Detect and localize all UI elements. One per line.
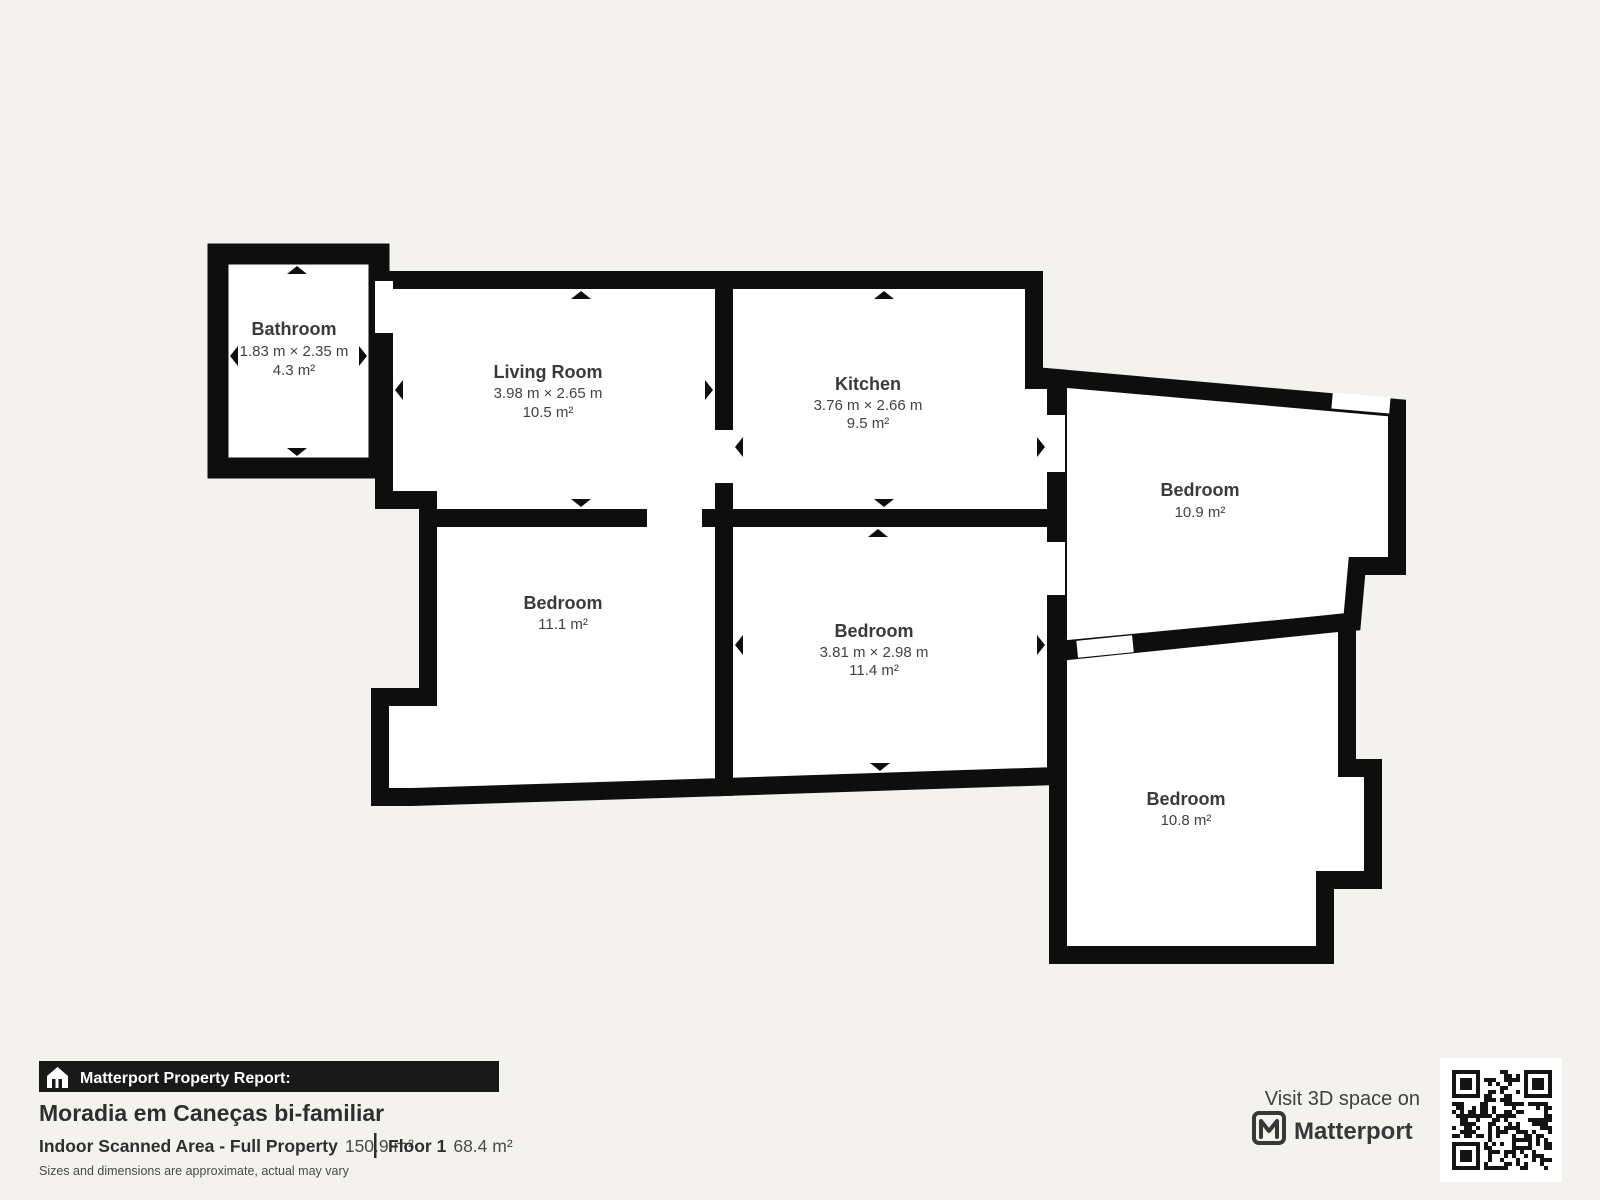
room-dims-living-room: 3.98 m × 2.65 m: [494, 385, 603, 402]
room-area-bedroom-bottom-right: 10.8 m²: [1161, 812, 1212, 829]
matterport-wordmark: Matterport: [1294, 1118, 1413, 1145]
door-opening-living-hall: [375, 281, 393, 333]
report-banner-label: Matterport Property Report:: [80, 1070, 291, 1087]
property-title: Moradia em Caneças bi-familiar: [39, 1100, 384, 1126]
room-label-living-room: Living Room: [494, 362, 603, 382]
room-dims-kitchen: 3.76 m × 2.66 m: [814, 397, 923, 414]
room-bedroom-bottom-left: [380, 518, 724, 797]
door-opening-living-bedroom: [647, 509, 702, 527]
room-label-bathroom: Bathroom: [252, 319, 337, 339]
door-opening-living-kitchen: [715, 430, 733, 483]
door-opening-kitchen-bedroom: [1047, 415, 1065, 472]
stats-divider: [374, 1133, 377, 1158]
floor-area-value: 68.4 m²: [453, 1136, 512, 1156]
disclaimer-text: Sizes and dimensions are approximate, ac…: [39, 1164, 350, 1178]
room-area-bathroom: 4.3 m²: [273, 362, 316, 379]
scanned-area-label: Indoor Scanned Area - Full Property: [39, 1136, 338, 1156]
room-area-kitchen: 9.5 m²: [847, 415, 890, 432]
room-bathroom: [218, 254, 379, 468]
scanned-area-line: Indoor Scanned Area - Full Property150.9…: [39, 1136, 414, 1156]
room-bedroom-bottom-left-shape: [380, 518, 724, 797]
floor-label: Floor 1: [388, 1136, 447, 1156]
room-label-bedroom-bottom-right: Bedroom: [1146, 789, 1225, 809]
room-label-bedroom-bottom-left: Bedroom: [523, 593, 602, 613]
room-label-kitchen: Kitchen: [835, 374, 901, 394]
qr-code: [1440, 1058, 1562, 1182]
room-area-bedroom-bottom-left: 11.1 m²: [538, 616, 588, 633]
room-area-bedroom-top-right: 10.9 m²: [1175, 504, 1226, 521]
floor-plan-canvas: Bathroom 1.83 m × 2.35 m 4.3 m² Living R…: [0, 0, 1600, 1200]
room-dims-bedroom-middle: 3.81 m × 2.98 m: [820, 644, 929, 661]
room-bathroom-shape: [218, 254, 379, 468]
door-opening-bedrooms-right: [1047, 542, 1065, 595]
room-label-bedroom-middle: Bedroom: [834, 621, 913, 641]
room-dims-bathroom: 1.83 m × 2.35 m: [240, 343, 349, 360]
room-label-bedroom-top-right: Bedroom: [1160, 480, 1239, 500]
visit-3d-label: Visit 3D space on: [1265, 1088, 1420, 1110]
room-area-living-room: 10.5 m²: [523, 404, 574, 421]
room-area-bedroom-middle: 11.4 m²: [849, 662, 899, 679]
